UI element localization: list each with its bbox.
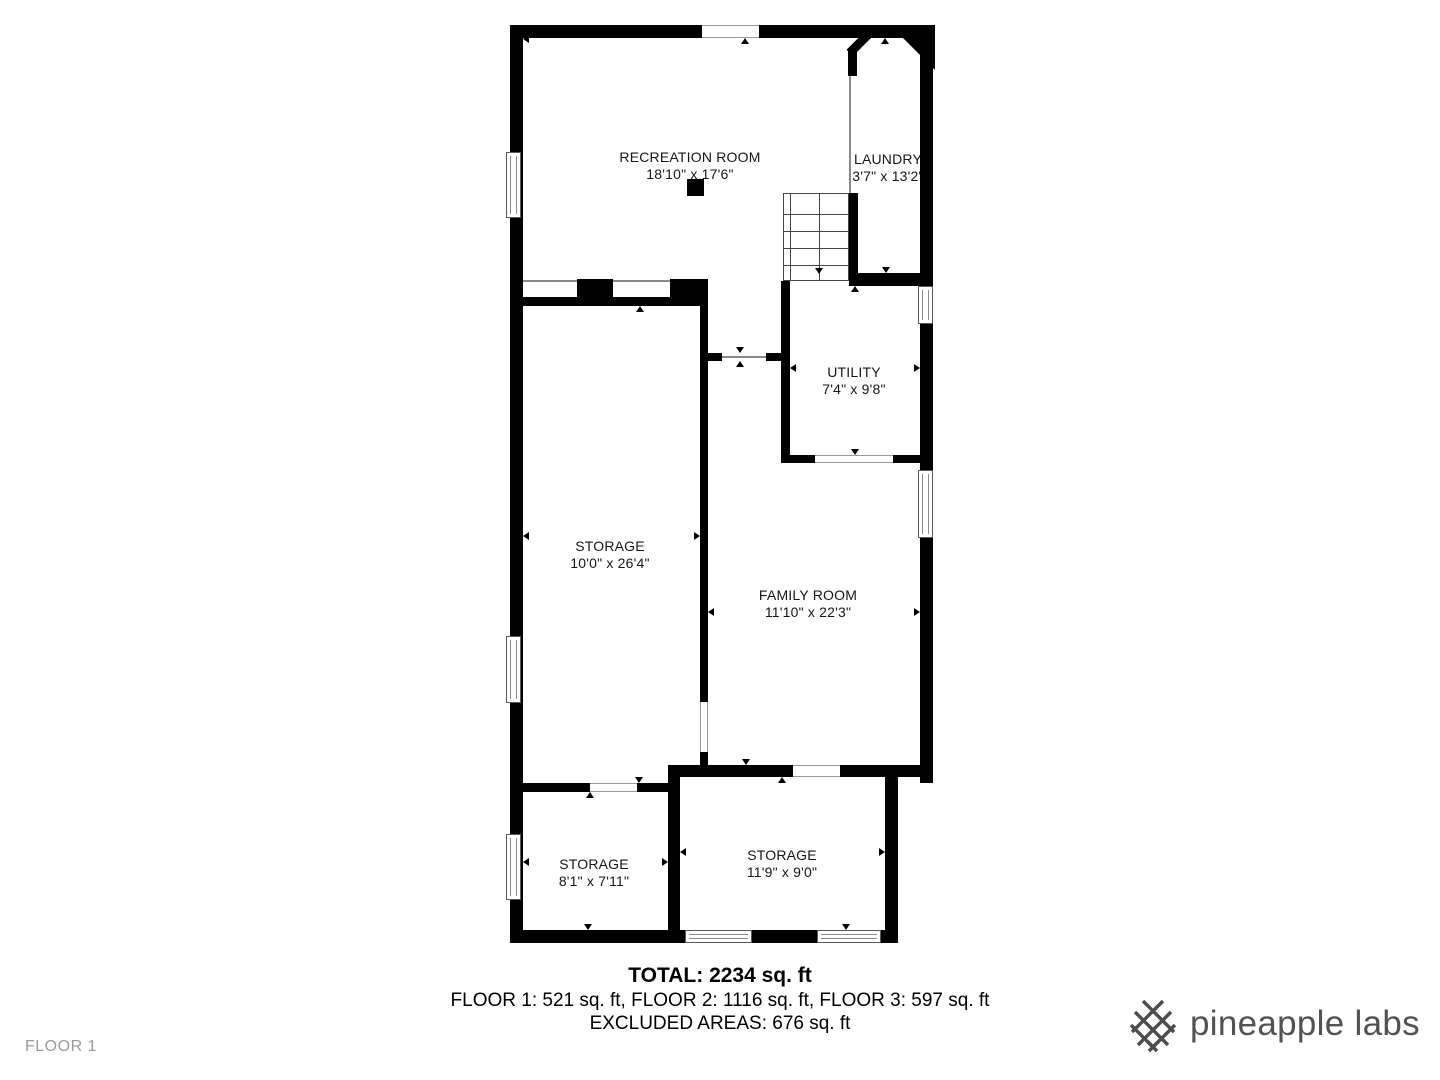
window (506, 152, 521, 218)
support-column (687, 179, 704, 196)
staircase (783, 193, 849, 281)
dimension-arrow (790, 364, 796, 372)
opening-line (523, 280, 577, 282)
dimension-arrow (882, 267, 890, 273)
stair-tread (784, 214, 848, 215)
dimension-arrow (708, 608, 714, 616)
wall (849, 193, 858, 281)
room-dims: 10'0" x 26'4" (570, 555, 649, 572)
dimension-arrow (636, 306, 644, 312)
wall (700, 297, 708, 765)
dimension-arrow (778, 777, 786, 783)
room-label-storage-mid: STORAGE 11'9" x 9'0" (747, 847, 817, 881)
room-label-storage-main: STORAGE 10'0" x 26'4" (570, 538, 649, 572)
stair-direction-arrow (815, 268, 823, 274)
room-name: STORAGE (747, 847, 817, 864)
dimension-arrow (635, 777, 643, 783)
stair-tread (784, 265, 848, 266)
dimension-arrow (694, 532, 700, 540)
dimension-arrow (741, 38, 749, 44)
opening-line (722, 356, 766, 358)
dimension-arrow (586, 792, 594, 798)
door-opening (700, 702, 708, 752)
dimension-arrow (662, 858, 668, 866)
dimension-arrow (881, 38, 889, 44)
room-name: FAMILY ROOM (759, 587, 857, 604)
dimension-arrow (742, 759, 750, 765)
dimension-arrow (736, 347, 744, 353)
wall (577, 279, 613, 299)
brand-logo: pineapple labs (1130, 995, 1420, 1053)
dimension-arrow (523, 532, 529, 540)
stair-tread (784, 248, 848, 249)
total-area-text: TOTAL: 2234 sq. ft (0, 962, 1440, 989)
dimension-arrow (851, 286, 859, 292)
room-name: RECREATION ROOM (619, 149, 760, 166)
room-dims: 7'4" x 9'8" (822, 381, 885, 398)
room-label-laundry: LAUNDRY 3'7" x 13'2" (852, 151, 923, 185)
dimension-arrow (523, 858, 529, 866)
stair-rail-line (790, 194, 791, 280)
dimension-arrow (842, 924, 850, 930)
wall (920, 25, 933, 783)
dimension-arrow (914, 608, 920, 616)
wall (708, 353, 722, 361)
dimension-arrow (584, 924, 592, 930)
opening-line (613, 280, 670, 282)
window (506, 834, 521, 900)
room-label-utility: UTILITY 7'4" x 9'8" (822, 364, 885, 398)
wall (849, 273, 933, 286)
brand-name: pineapple labs (1190, 1004, 1420, 1044)
dimension-arrow (523, 35, 529, 43)
door-opening (815, 455, 893, 463)
dimension-arrow (851, 449, 859, 455)
dimension-arrow (914, 364, 920, 372)
room-label-storage-small: STORAGE 8'1" x 7'11" (559, 856, 629, 890)
floor-plan-page: RECREATION ROOM 18'10" x 17'6" LAUNDRY 3… (0, 0, 1440, 1080)
dimension-arrow (879, 848, 885, 856)
window (918, 286, 933, 324)
door-opening (793, 765, 840, 777)
window (918, 470, 933, 538)
room-name: LAUNDRY (852, 151, 923, 168)
room-name: STORAGE (559, 856, 629, 873)
door-opening (702, 25, 759, 38)
wall (781, 281, 790, 463)
window (817, 930, 881, 943)
dimension-arrow (680, 848, 686, 856)
wall-chamfer (890, 25, 935, 70)
stair-tread (784, 231, 848, 232)
door-opening (590, 783, 637, 792)
room-label-family-room: FAMILY ROOM 11'10" x 22'3" (759, 587, 857, 621)
floor-number-label: FLOOR 1 (25, 1038, 97, 1056)
room-name: UTILITY (822, 364, 885, 381)
wall (668, 765, 680, 943)
wall (670, 279, 708, 299)
room-dims: 11'9" x 9'0" (747, 864, 817, 881)
dimension-arrow (736, 361, 744, 367)
room-dims: 11'10" x 22'3" (759, 604, 857, 621)
room-label-recreation-room: RECREATION ROOM 18'10" x 17'6" (619, 149, 760, 183)
room-name: STORAGE (570, 538, 649, 555)
room-dims: 3'7" x 13'2" (852, 168, 923, 185)
wall (885, 765, 898, 943)
lattice-icon (1130, 995, 1176, 1053)
opening-line (849, 75, 851, 193)
window (685, 930, 752, 943)
room-dims: 8'1" x 7'11" (559, 873, 629, 890)
window (506, 636, 521, 703)
